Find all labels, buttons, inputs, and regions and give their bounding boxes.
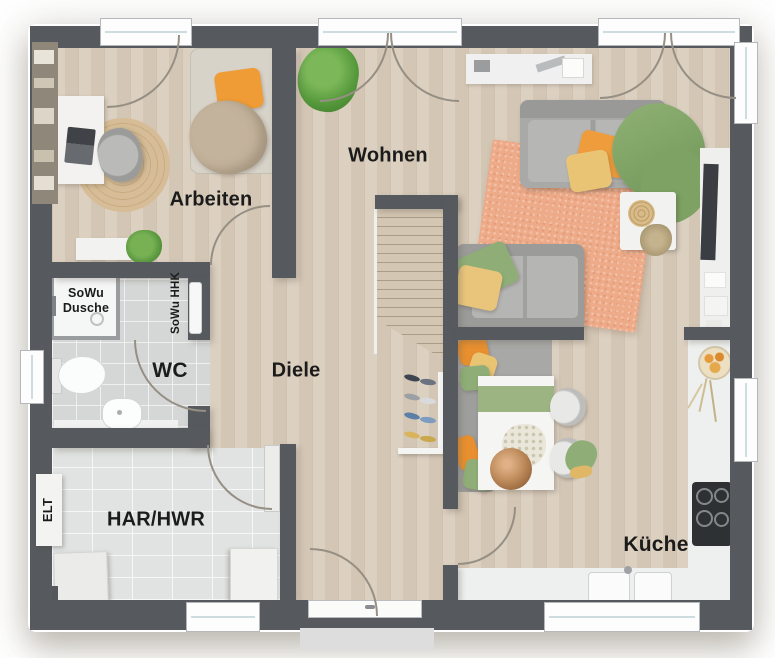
- wall-har-diele: [280, 444, 296, 600]
- window-wc-left: [20, 350, 44, 404]
- faucet: [624, 566, 632, 574]
- room-label-har-hwr: HAR/HWR: [107, 509, 205, 532]
- books-5: [34, 176, 54, 190]
- wall-living-kitchen: [456, 327, 584, 340]
- burner-4: [714, 512, 729, 527]
- wall-arbeiten-wohnen: [272, 48, 296, 278]
- copper-bowl: [490, 448, 532, 490]
- tv-decor-1: [704, 272, 726, 288]
- wall-wc-bottom: [52, 428, 208, 448]
- sideboard: [76, 238, 132, 260]
- sofa-yellow-pillow: [565, 149, 613, 194]
- wall-kitchen-stub: [684, 327, 730, 340]
- books-2: [34, 78, 54, 88]
- basin-faucet: [117, 410, 122, 415]
- books-4: [34, 150, 54, 162]
- washbasin: [102, 398, 142, 430]
- window-har: [186, 602, 260, 632]
- wall-kitchen-door-lower: [443, 565, 458, 600]
- tv-decor-2: [704, 296, 728, 316]
- floor-plan: Arbeiten Wohnen Diele WC HAR/HWR Küche S…: [0, 0, 775, 658]
- wall-arbeiten-diele: [52, 262, 210, 278]
- room-label-wohnen: Wohnen: [348, 145, 428, 168]
- entrance-step: [300, 628, 434, 650]
- window-kitchen-right: [734, 378, 758, 462]
- rattan-tray: [628, 200, 655, 227]
- room-label-arbeiten: Arbeiten: [170, 189, 253, 212]
- table-runner: [478, 386, 554, 412]
- fruit-bowl: [698, 346, 732, 380]
- shower-label-line1: SoWu: [63, 286, 109, 301]
- dining-chair-1: [550, 388, 586, 426]
- wall-stair-right: [443, 195, 458, 509]
- burner-2: [714, 488, 729, 503]
- console-decor-books: [474, 60, 490, 72]
- window-kitchen-bottom: [544, 602, 700, 632]
- console-decor-box: [562, 58, 584, 78]
- staircase-stringer: [374, 209, 377, 354]
- elt-label: ELT: [40, 498, 56, 522]
- books-3: [34, 108, 54, 124]
- books-1: [34, 50, 54, 64]
- towel-radiator: [189, 282, 202, 334]
- window-living-right: [734, 42, 758, 124]
- room-label-wc: WC: [152, 359, 187, 383]
- burner-3: [696, 510, 713, 527]
- bookshelf: [32, 42, 58, 204]
- burner-1: [696, 488, 713, 505]
- shower-label-line2: Dusche: [63, 301, 109, 316]
- laptop: [64, 127, 96, 166]
- shower-label: SoWu Dusche: [63, 286, 109, 316]
- room-label-kueche: Küche: [623, 533, 688, 557]
- cooktop: [692, 482, 732, 546]
- room-label-diele: Diele: [272, 360, 321, 383]
- towel-radiator-label: SoWu HHK: [170, 272, 184, 334]
